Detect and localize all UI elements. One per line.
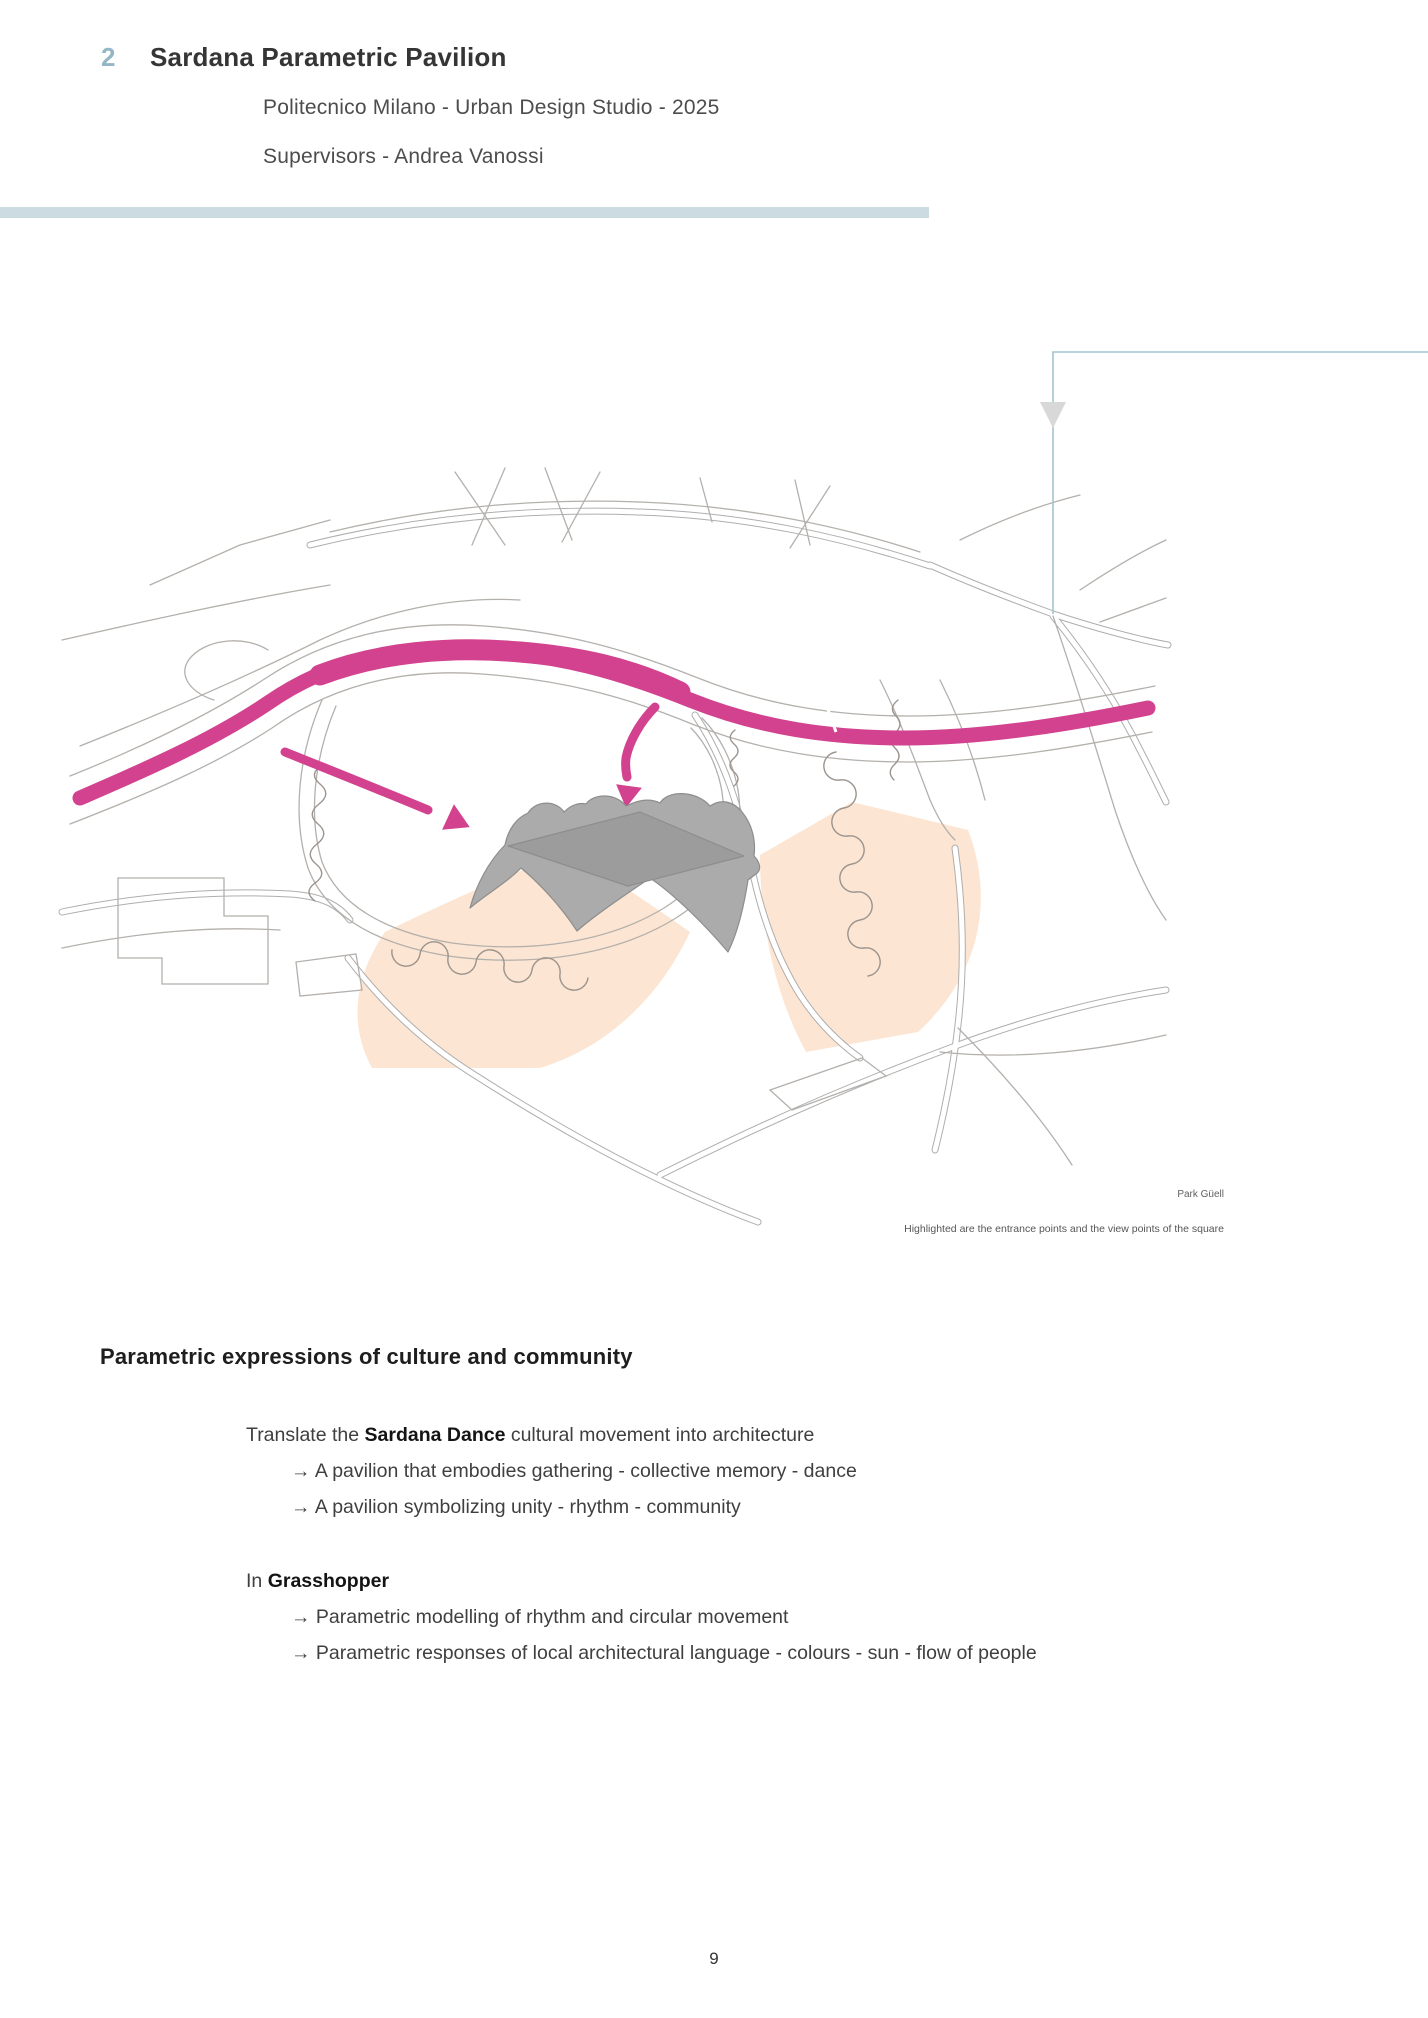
figure-caption: Highlighted are the entrance points and … (700, 1223, 1224, 1235)
site-map-figure (0, 0, 1428, 2018)
callout-line (1053, 352, 1428, 614)
flow-ribbon (80, 649, 1148, 798)
paragraph-translate: Translate the Sardana Dance cultural mov… (246, 1424, 814, 1447)
callout-arrow-icon (1040, 402, 1066, 428)
view-zone-right (760, 802, 981, 1052)
page-number: 9 (0, 1949, 1428, 1969)
figure-label: Park Güell (1024, 1189, 1224, 1200)
text-run-bold: Grasshopper (268, 1570, 389, 1592)
flow-arrow-icon (285, 752, 476, 840)
document-page: { "header": { "number": "2", "title": "S… (0, 0, 1428, 2018)
section-heading: Parametric expressions of culture and co… (100, 1344, 633, 1370)
text-run: cultural movement into architecture (505, 1424, 814, 1446)
text-run: Translate the (246, 1424, 365, 1446)
bullet-line: → Parametric modelling of rhythm and cir… (291, 1606, 788, 1629)
bullet-line: → Parametric responses of local architec… (291, 1642, 1037, 1665)
text-run: In (246, 1570, 268, 1592)
bullet-line: → A pavilion that embodies gathering - c… (291, 1460, 857, 1483)
bullet-line: → A pavilion symbolizing unity - rhythm … (291, 1496, 741, 1519)
paragraph-grasshopper: In Grasshopper (246, 1570, 389, 1593)
text-run-bold: Sardana Dance (365, 1424, 506, 1446)
flow-arrow-icon (613, 707, 655, 810)
